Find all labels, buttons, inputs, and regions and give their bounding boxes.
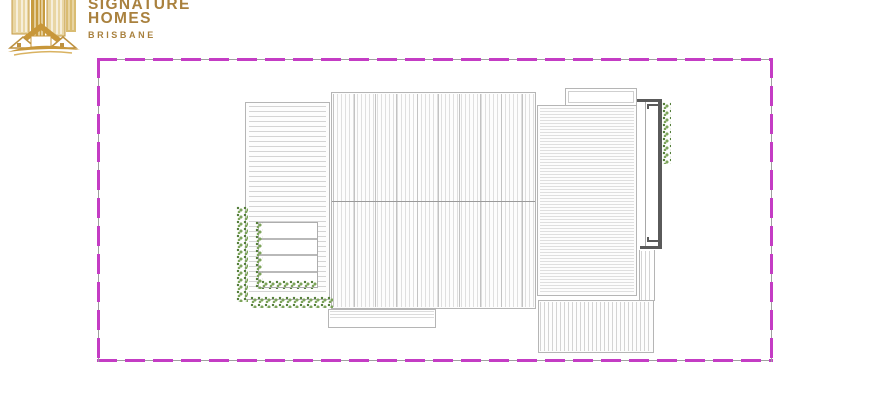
vegetation-strip-bottom (250, 296, 333, 308)
garden-step (259, 238, 317, 255)
roof-bump-out-inner-line (568, 91, 634, 103)
deck-wall-top-return (637, 99, 662, 102)
lower-right-roof-hatch (540, 302, 652, 351)
vegetation-strip-steps-left (255, 221, 263, 289)
roof-ridge-line (332, 201, 535, 202)
roof-bump-out (565, 88, 637, 106)
lower-right-roof-upper-strip (639, 250, 655, 301)
front-porch-roof (328, 309, 436, 328)
deck-wall-bottom-return (640, 246, 662, 249)
garden-step (259, 223, 317, 238)
vegetation-strip-left (236, 206, 248, 302)
right-wing-roof-hatch (540, 108, 634, 293)
lower-right-roof (538, 300, 654, 353)
main-roof (331, 92, 536, 309)
deck-wall-top-tick-leg (647, 104, 649, 109)
front-porch-roof-hatch (330, 311, 434, 320)
roof-plan-drawing (0, 0, 870, 420)
vegetation-strip-steps-bottom (261, 280, 318, 289)
garden-steps (258, 222, 318, 288)
deck-wall-bottom-tick-leg (647, 237, 649, 242)
lower-right-roof-upper-strip-hatch (641, 251, 653, 300)
right-wing-roof (537, 105, 637, 296)
deck-inner-edge-line (645, 100, 646, 248)
garden-step (259, 254, 317, 271)
vegetation-strip-right (662, 102, 671, 164)
